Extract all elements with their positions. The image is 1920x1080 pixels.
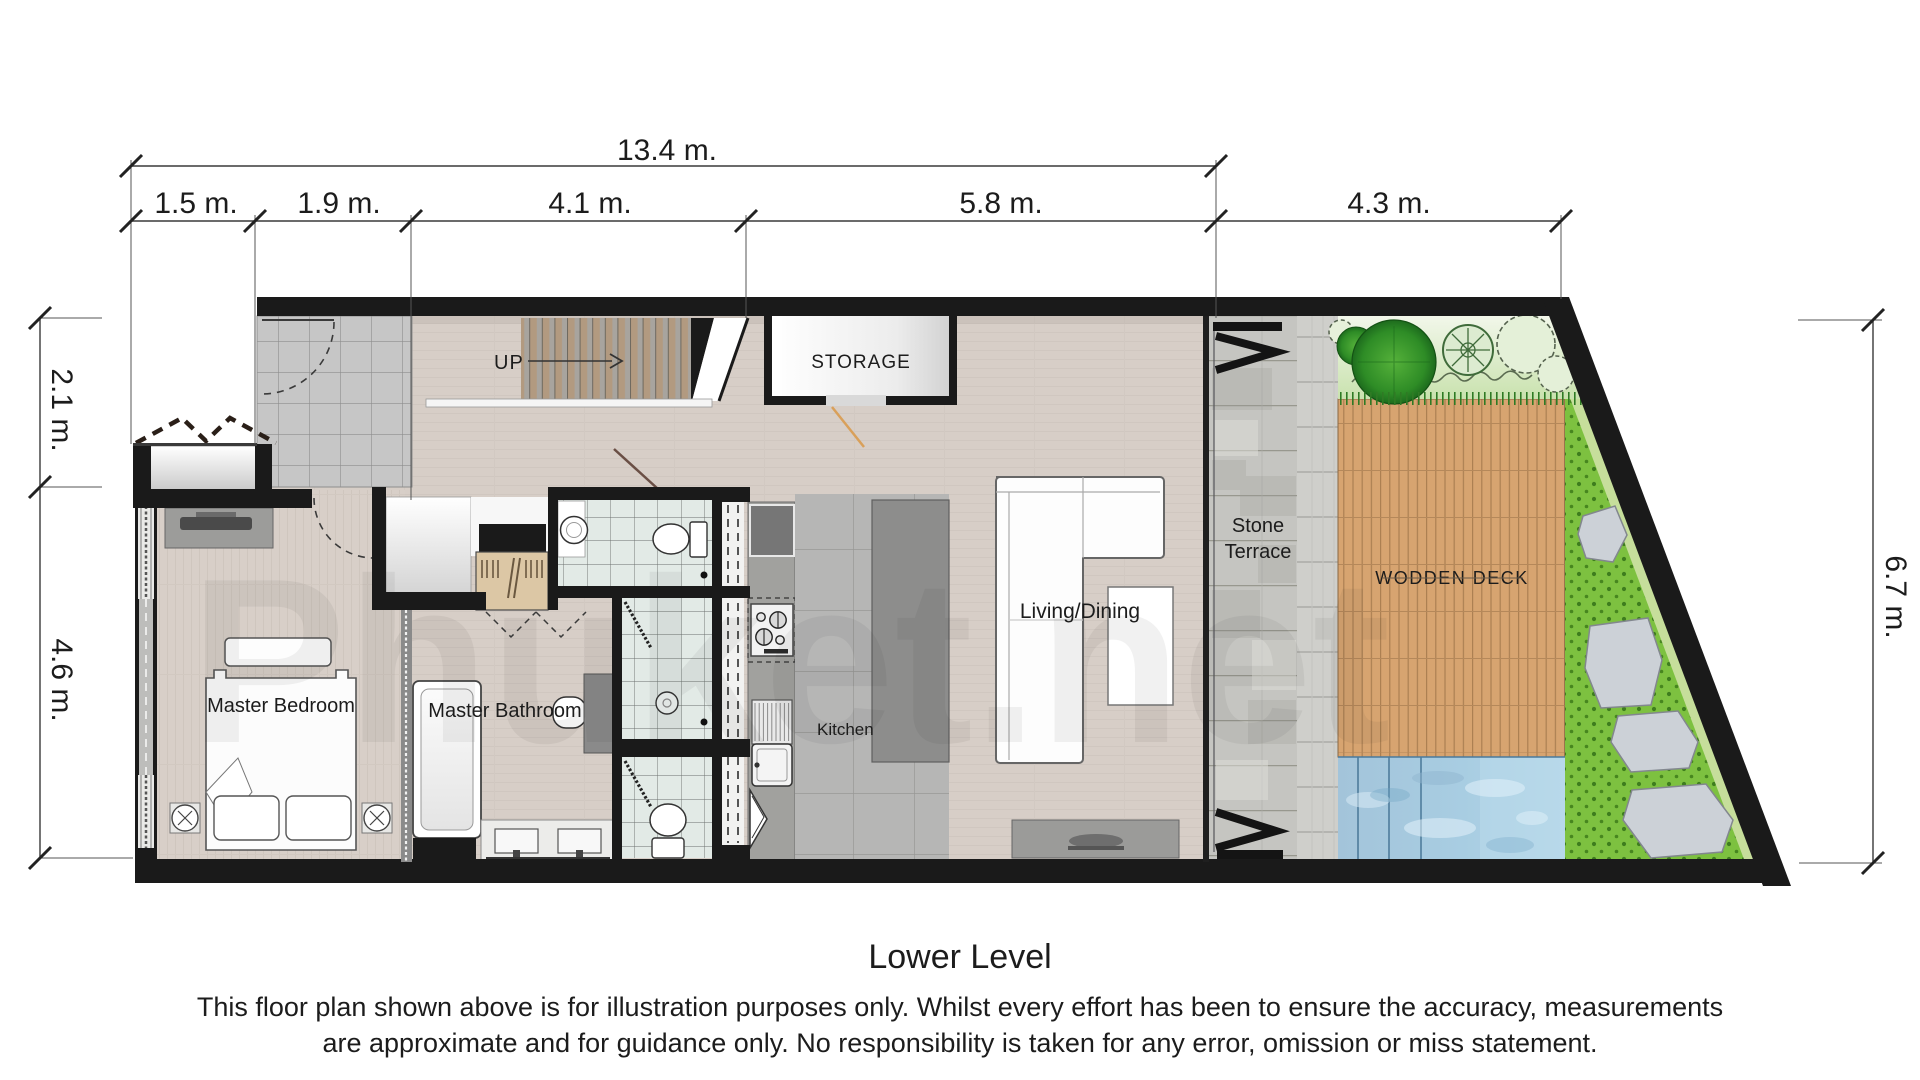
svg-text:1.9 m.: 1.9 m. [297, 187, 380, 220]
svg-text:4.6 m.: 4.6 m. [45, 638, 78, 721]
svg-text:13.4 m.: 13.4 m. [617, 134, 717, 167]
svg-text:STORAGE: STORAGE [811, 352, 911, 373]
svg-text:This floor plan shown above is: This floor plan shown above is for illus… [197, 992, 1723, 1022]
svg-text:1.5 m.: 1.5 m. [154, 187, 237, 220]
svg-text:6.7 m.: 6.7 m. [1879, 555, 1912, 638]
svg-text:Phuket.net: Phuket.net [189, 529, 1390, 792]
svg-text:UP: UP [494, 352, 524, 374]
svg-text:2.1 m.: 2.1 m. [45, 368, 78, 451]
svg-text:Master Bedroom: Master Bedroom [207, 695, 355, 717]
svg-text:are approximate and for guidan: are approximate and for guidance only. N… [322, 1028, 1597, 1058]
svg-text:4.1 m.: 4.1 m. [548, 187, 631, 220]
svg-text:5.8 m.: 5.8 m. [959, 187, 1042, 220]
svg-text:Master Bathroom: Master Bathroom [428, 700, 581, 722]
svg-text:Lower Level: Lower Level [868, 938, 1051, 976]
svg-text:4.3 m.: 4.3 m. [1347, 187, 1430, 220]
